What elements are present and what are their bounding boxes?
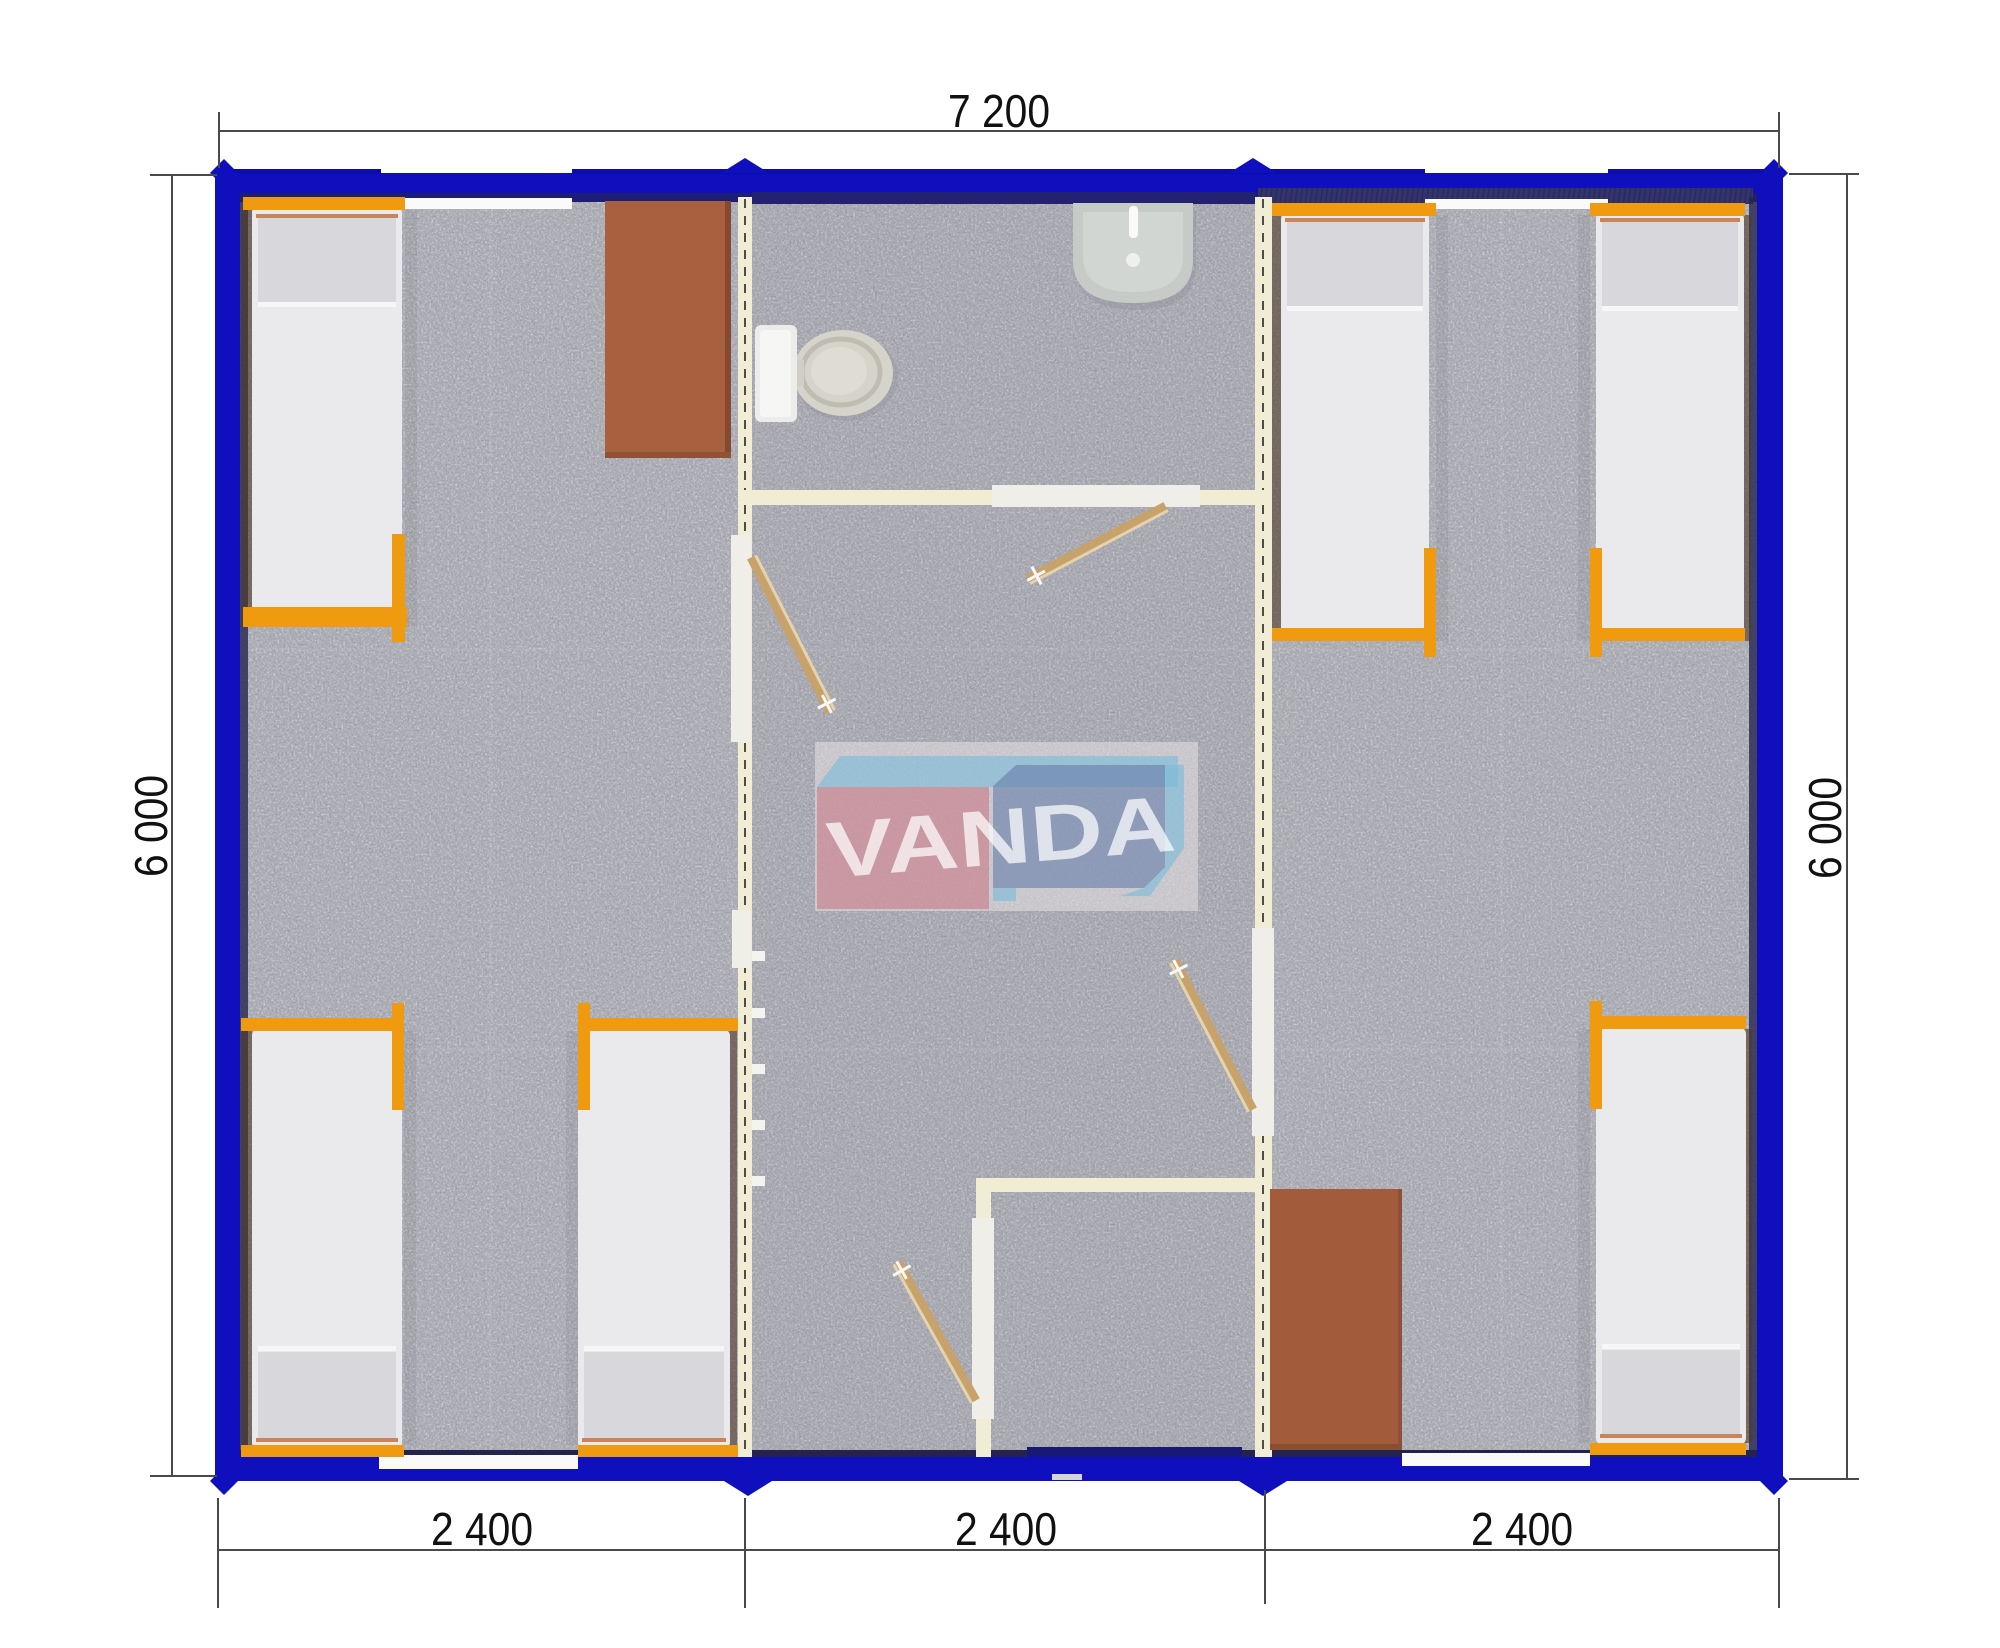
svg-text:2 400: 2 400 xyxy=(955,1503,1057,1555)
svg-text:6 000: 6 000 xyxy=(125,775,177,877)
svg-text:2 400: 2 400 xyxy=(431,1503,533,1555)
svg-text:2 400: 2 400 xyxy=(1471,1503,1573,1555)
svg-text:6 000: 6 000 xyxy=(1799,777,1851,879)
svg-text:7 200: 7 200 xyxy=(948,85,1050,137)
